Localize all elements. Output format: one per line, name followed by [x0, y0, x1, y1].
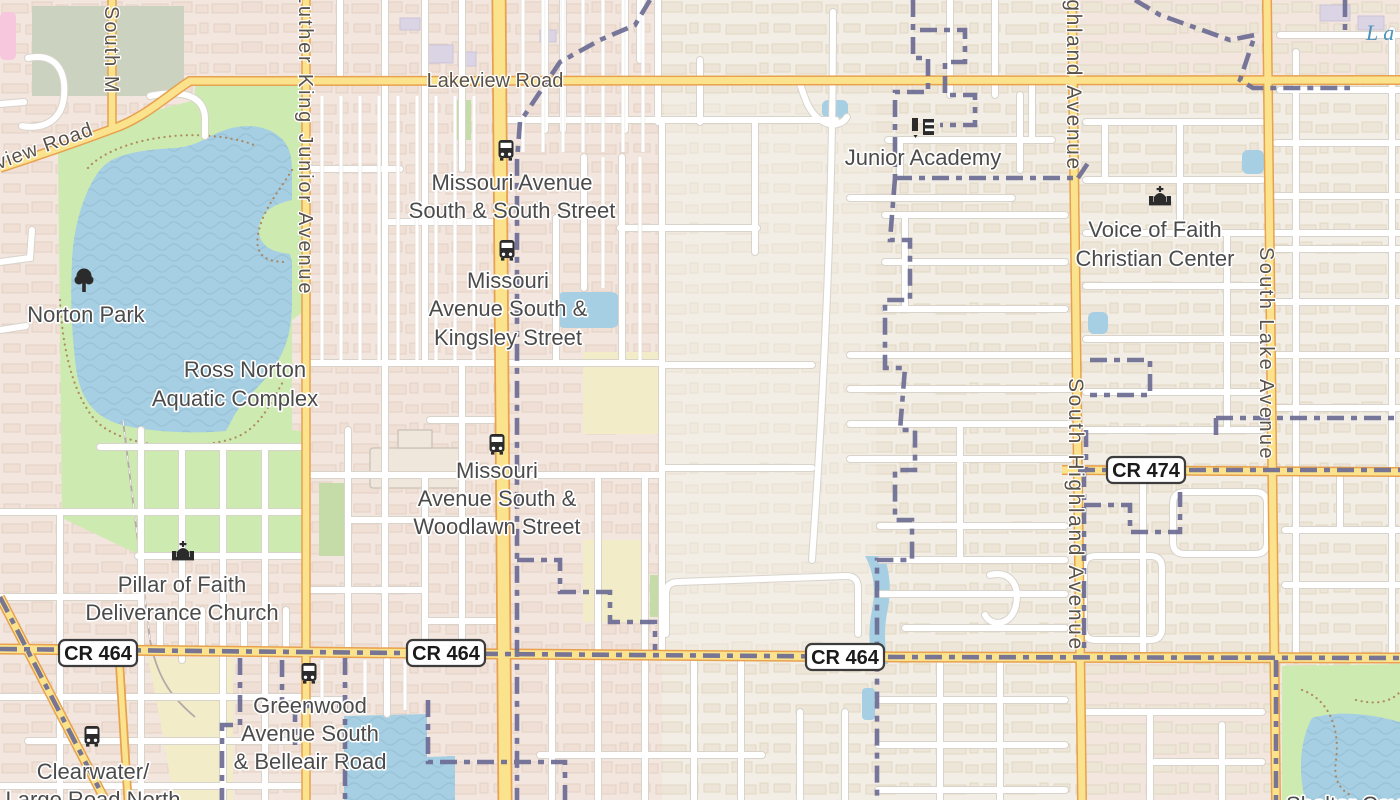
- svg-text:Lak: Lak: [1365, 20, 1400, 45]
- svg-text:Kingsley Street: Kingsley Street: [434, 325, 582, 350]
- svg-text:Shelter Cove: Shelter Cove: [1286, 792, 1400, 800]
- svg-text:Clearwater/: Clearwater/: [37, 759, 150, 784]
- svg-text:Pillar of Faith: Pillar of Faith: [118, 572, 246, 597]
- svg-text:Ross Norton: Ross Norton: [184, 357, 306, 382]
- svg-text:South Highland Avenue: South Highland Avenue: [1062, 0, 1085, 172]
- svg-text:Christian Center: Christian Center: [1076, 246, 1235, 271]
- svg-text:Lakeview Road: Lakeview Road: [427, 70, 564, 92]
- svg-text:Junior Academy: Junior Academy: [845, 145, 1002, 170]
- svg-text:Avenue South &: Avenue South &: [418, 486, 577, 511]
- svg-text:Missouri Avenue: Missouri Avenue: [431, 170, 592, 195]
- svg-text:South M: South M: [100, 6, 122, 94]
- svg-text:Avenue South &: Avenue South &: [429, 296, 588, 321]
- svg-text:Deliverance Church: Deliverance Church: [85, 600, 278, 625]
- svg-text:Woodlawn Street: Woodlawn Street: [413, 514, 580, 539]
- svg-text:Missouri: Missouri: [467, 268, 549, 293]
- svg-text:Greenwood: Greenwood: [253, 693, 367, 718]
- svg-text:CR 474: CR 474: [1112, 460, 1181, 482]
- svg-text:CR 464: CR 464: [412, 643, 481, 665]
- svg-text:Avenue South: Avenue South: [241, 721, 379, 746]
- svg-text:Largo Road North: Largo Road North: [6, 787, 181, 800]
- svg-text:South & South Street: South & South Street: [409, 198, 616, 223]
- svg-text:Missouri: Missouri: [456, 458, 538, 483]
- svg-text:South Highland Avenue: South Highland Avenue: [1064, 378, 1087, 652]
- svg-text:& Belleair Road: & Belleair Road: [234, 749, 387, 774]
- svg-text:South Lake Avenue: South Lake Avenue: [1255, 247, 1277, 461]
- svg-text:Luther King Junior Avenue: Luther King Junior Avenue: [294, 0, 316, 296]
- svg-text:Norton Park: Norton Park: [27, 302, 145, 327]
- svg-text:CR 464: CR 464: [64, 643, 133, 665]
- svg-text:Aquatic Complex: Aquatic Complex: [152, 386, 318, 411]
- svg-text:CR 464: CR 464: [811, 647, 880, 669]
- svg-text:Voice of Faith: Voice of Faith: [1088, 217, 1221, 242]
